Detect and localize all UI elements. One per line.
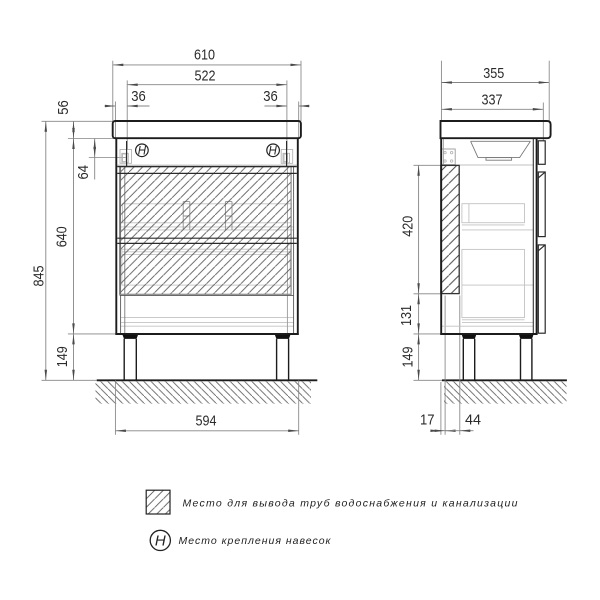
- svg-text:64: 64: [75, 165, 92, 180]
- svg-text:355: 355: [483, 65, 504, 82]
- svg-text:44: 44: [465, 412, 481, 429]
- svg-text:56: 56: [55, 100, 72, 115]
- svg-text:420: 420: [399, 216, 416, 237]
- svg-text:594: 594: [196, 412, 217, 429]
- svg-text:17: 17: [420, 412, 435, 429]
- svg-text:131: 131: [398, 305, 415, 326]
- svg-text:Место крепления навесок: Место крепления навесок: [179, 535, 332, 547]
- svg-text:337: 337: [482, 92, 503, 109]
- svg-text:149: 149: [399, 347, 416, 368]
- svg-text:36: 36: [131, 88, 146, 105]
- svg-text:522: 522: [195, 67, 216, 84]
- svg-text:H: H: [138, 145, 147, 157]
- svg-text:610: 610: [194, 47, 215, 64]
- svg-text:H: H: [155, 533, 166, 550]
- svg-text:845: 845: [30, 266, 47, 287]
- svg-text:640: 640: [54, 226, 71, 247]
- svg-text:Место для вывода труб водоснаб: Место для вывода труб водоснабжения и ка…: [183, 497, 518, 509]
- svg-text:H: H: [269, 145, 278, 157]
- svg-text:149: 149: [54, 346, 71, 367]
- svg-text:36: 36: [263, 88, 278, 105]
